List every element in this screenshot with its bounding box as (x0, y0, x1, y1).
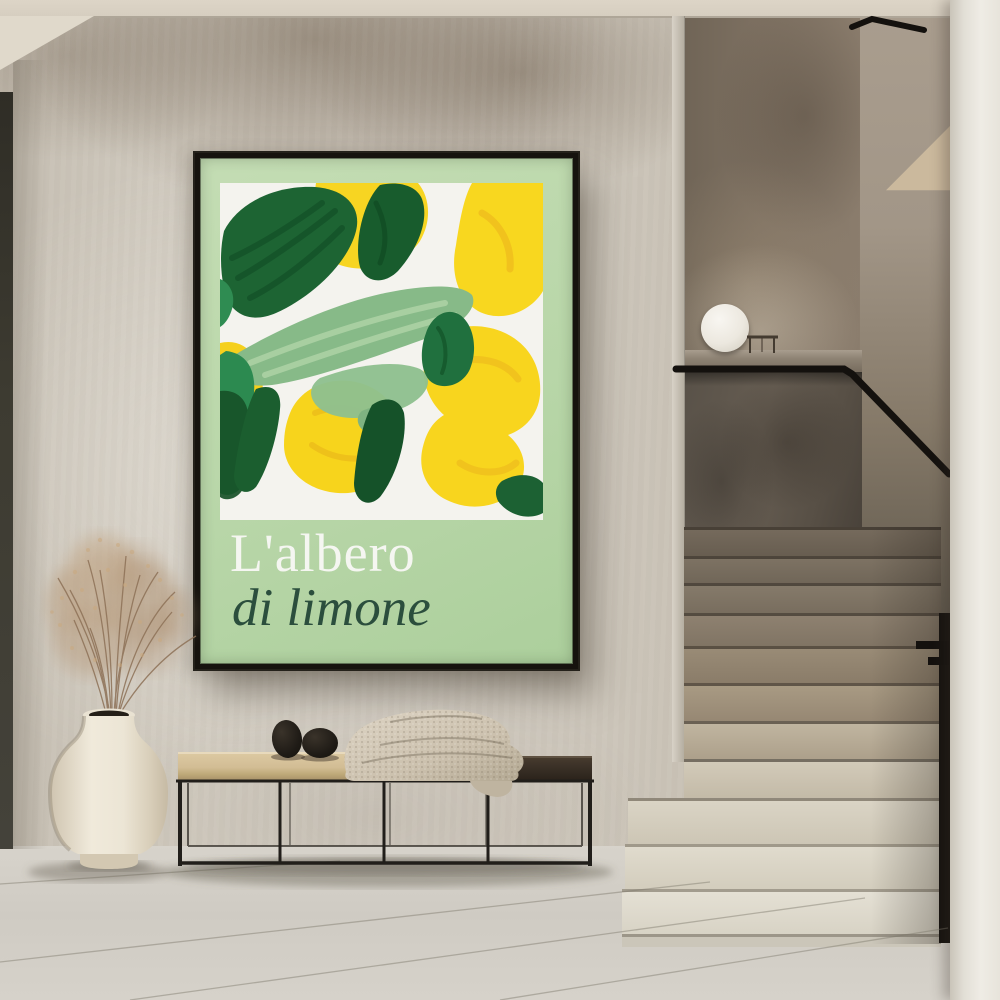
half-wall-ledge (675, 350, 862, 372)
sphere-lamp (701, 304, 749, 352)
poster-background: L'albero di limone (200, 158, 573, 664)
lemon-painting (220, 183, 543, 520)
staircase-steps (622, 527, 941, 944)
entryway-scene: L'albero di limone (0, 0, 1000, 1000)
wall-corner-shade (13, 60, 47, 849)
poster-title-line1: L'albero (230, 526, 416, 580)
poster-frame: L'albero di limone (193, 151, 580, 671)
half-wall-face (675, 372, 862, 528)
door-frame-edge (0, 92, 13, 849)
poster-title-line2: di limone (232, 582, 431, 635)
ceiling (0, 0, 953, 18)
steps-shadow (622, 527, 941, 944)
white-column (950, 0, 1000, 1000)
